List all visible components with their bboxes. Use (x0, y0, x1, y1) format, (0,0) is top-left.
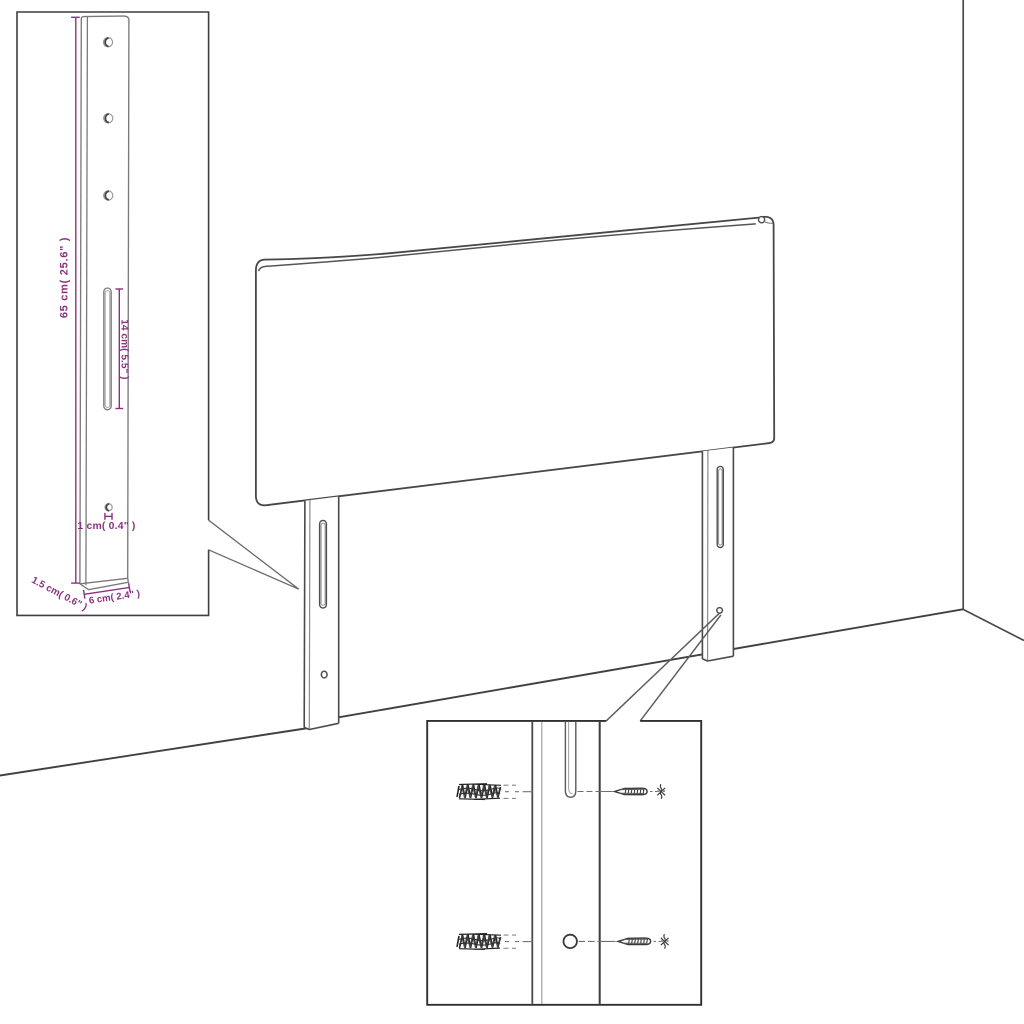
svg-text:65 cm( 25.6" ): 65 cm( 25.6" ) (59, 237, 71, 318)
svg-text:14 cm( 5.5" ): 14 cm( 5.5" ) (118, 319, 129, 379)
svg-text:1 cm( 0.4" ): 1 cm( 0.4" ) (77, 521, 135, 532)
svg-text:6 cm( 2.4" ): 6 cm( 2.4" ) (88, 588, 141, 606)
